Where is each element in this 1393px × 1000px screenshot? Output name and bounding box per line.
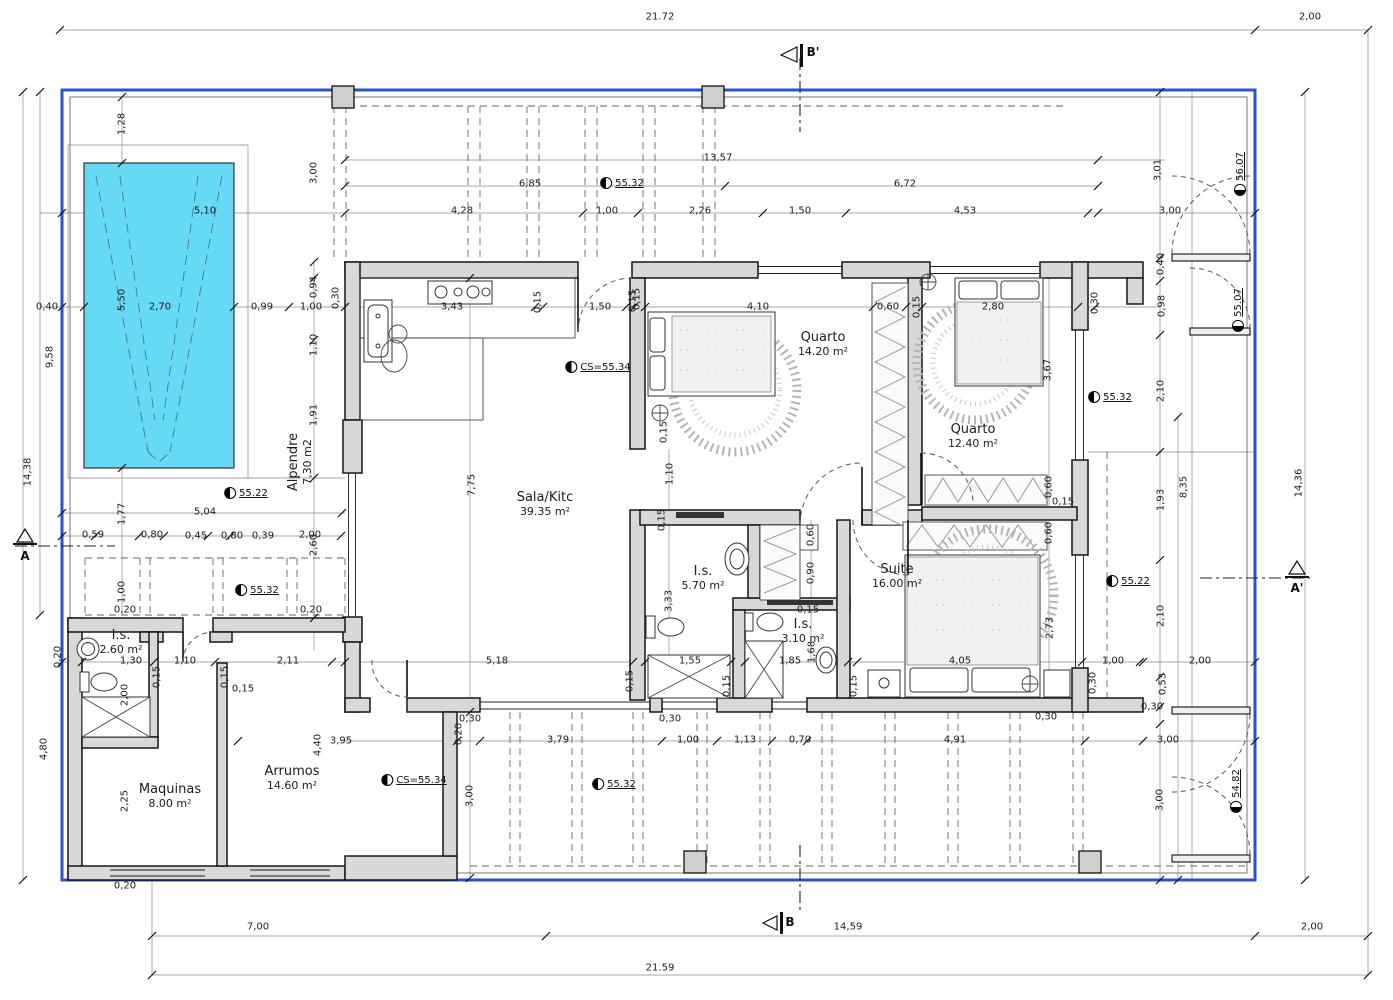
- section-marker-b-prime: B': [807, 45, 820, 59]
- survey-line: [70, 97, 1247, 873]
- swimming-pool: [84, 163, 234, 468]
- floor-plan-drawing: [0, 0, 1393, 1000]
- section-b-triangle-icon: [763, 916, 777, 930]
- section-marker-b: B: [785, 915, 794, 929]
- section-marker-a-prime: A': [1291, 581, 1304, 595]
- section-a-prime-triangle-icon: [1289, 561, 1305, 574]
- section-marker-a: A: [20, 549, 29, 563]
- section-b-prime-triangle-icon: [781, 47, 797, 62]
- doors: [183, 278, 973, 697]
- floor-plan: 21.722,0013,576,856,725,104,281,002,261,…: [0, 0, 1393, 1000]
- section-a-triangle-icon: [17, 529, 33, 542]
- gates: [1172, 176, 1250, 862]
